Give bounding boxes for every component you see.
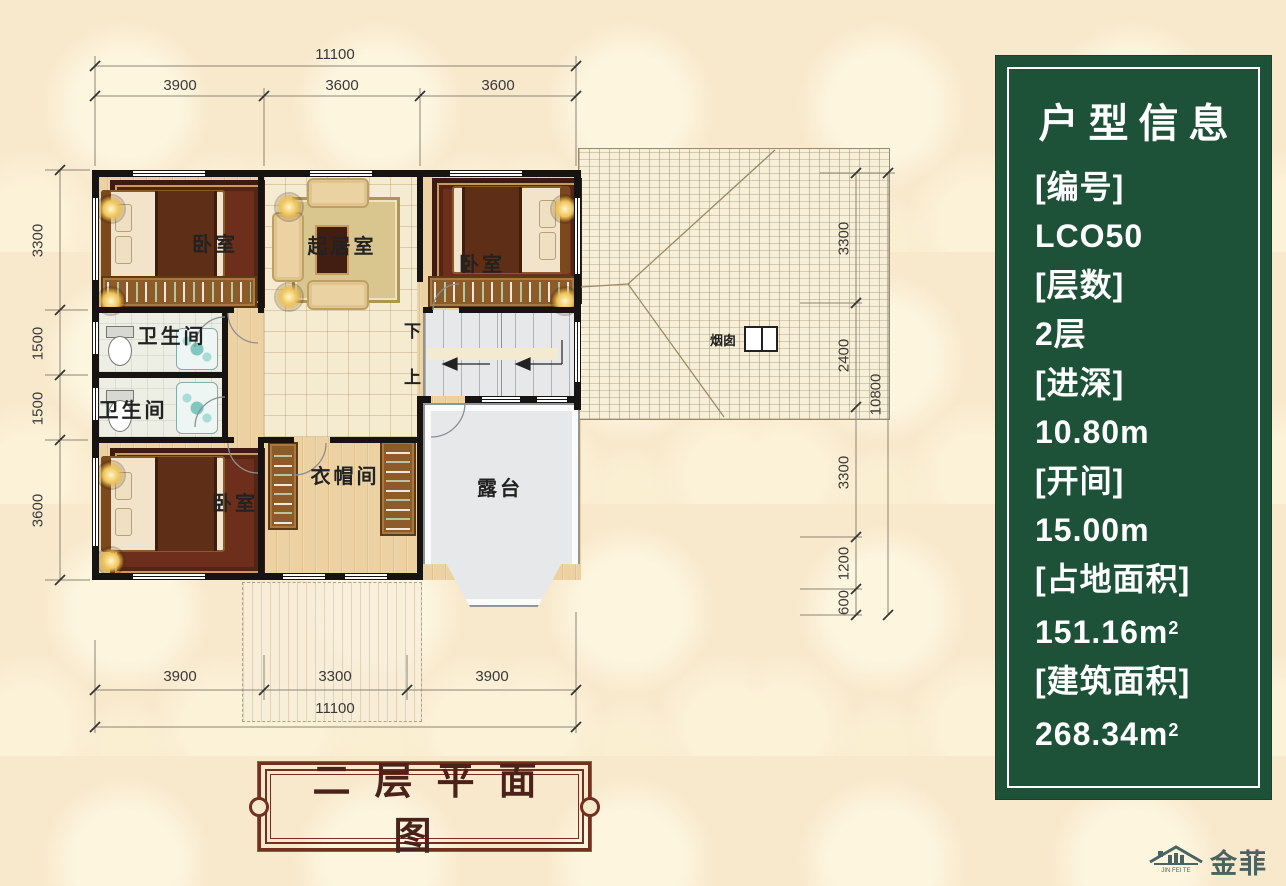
stair-down-label: 下 xyxy=(404,317,421,342)
info-label: [编号] xyxy=(1035,163,1252,212)
wardrobe-bedroom-tl xyxy=(101,276,257,308)
house-icon: JIN FEI TE xyxy=(1148,840,1210,880)
room-label-living: 起居室 xyxy=(282,230,402,259)
dim-right-total: 10800 xyxy=(868,360,885,430)
info-value: 2层 xyxy=(1035,310,1252,359)
info-label: [建筑面积] xyxy=(1035,657,1252,706)
stair-up-label: 上 xyxy=(404,363,421,388)
room-label-bedroom-tr: 卧室 xyxy=(422,248,542,277)
info-panel: 户型信息 [编号] LCO50 [层数] 2层 [进深] 10.80m [开间]… xyxy=(995,55,1272,800)
dim-top-seg-2: 3600 xyxy=(292,77,392,94)
window xyxy=(310,170,372,177)
dim-left-seg-4: 3600 xyxy=(30,476,47,546)
window xyxy=(133,170,205,177)
window xyxy=(345,573,387,580)
wall xyxy=(423,307,433,313)
wall xyxy=(465,396,482,403)
wall xyxy=(567,396,581,403)
lamp-glow xyxy=(276,194,302,220)
info-value: 268.34m2 xyxy=(1035,706,1252,759)
window xyxy=(133,573,205,580)
info-label: [进深] xyxy=(1035,359,1252,408)
dim-right-seg-5: 600 xyxy=(836,568,853,638)
room-label-bathroom-1: 卫生间 xyxy=(112,320,232,349)
dim-bottom-seg-3: 3900 xyxy=(442,668,542,685)
wall xyxy=(92,307,234,313)
wall xyxy=(520,396,537,403)
lamp-glow xyxy=(98,462,124,488)
wall xyxy=(92,372,228,378)
sofa-top xyxy=(307,178,369,208)
dim-left-seg-1: 3300 xyxy=(30,206,47,276)
info-panel-items: [编号] LCO50 [层数] 2层 [进深] 10.80m [开间] 15.0… xyxy=(1035,163,1252,759)
dim-right-seg-3: 3300 xyxy=(836,438,853,508)
superscript: 2 xyxy=(1168,720,1179,740)
dim-top-seg-3: 3600 xyxy=(448,77,548,94)
window xyxy=(92,458,99,546)
wall xyxy=(459,307,581,313)
window xyxy=(482,396,520,403)
lamp-glow xyxy=(276,284,302,310)
dim-bottom-seg-2: 3300 xyxy=(285,668,385,685)
info-value: 151.16m2 xyxy=(1035,604,1252,657)
window xyxy=(574,322,581,382)
superscript: 2 xyxy=(1168,618,1179,638)
brand-logo: JIN FEI TE 金菲特 xyxy=(1148,840,1278,886)
room-label-bathroom-2: 卫生间 xyxy=(73,394,193,423)
chimney-label: 烟囱 xyxy=(710,330,736,349)
wall xyxy=(417,403,423,580)
lamp-glow xyxy=(98,196,124,222)
room-label-cloakroom: 衣帽间 xyxy=(285,460,405,489)
info-label: [开间] xyxy=(1035,457,1252,506)
window xyxy=(450,170,522,177)
room-label-bedroom-bl: 卧室 xyxy=(175,487,295,516)
dim-bottom-seg-1: 3900 xyxy=(130,668,230,685)
dim-top-total: 11100 xyxy=(285,46,385,63)
floor-plan-page: 卧室 起居室 卧室 卧室 卫生间 卫生间 衣帽间 露台 烟囱 下 上 11100… xyxy=(0,0,1286,886)
sofa-bottom xyxy=(307,280,369,310)
window xyxy=(574,198,581,274)
window xyxy=(283,573,325,580)
window xyxy=(92,322,99,354)
dim-right-seg-2: 2400 xyxy=(836,321,853,391)
wall xyxy=(417,396,431,403)
caption-banner: 二层平面图 xyxy=(258,762,591,851)
window xyxy=(537,396,567,403)
info-label: [占地面积] xyxy=(1035,555,1252,604)
chimney-symbol xyxy=(744,326,778,352)
brand-name: 金菲特 xyxy=(1210,842,1278,886)
lamp-glow xyxy=(98,548,124,574)
staircase xyxy=(423,310,576,396)
dim-top-seg-1: 3900 xyxy=(130,77,230,94)
wall xyxy=(330,437,423,443)
info-panel-title: 户型信息 xyxy=(995,91,1272,149)
dim-right-seg-1: 3300 xyxy=(836,204,853,274)
room-label-terrace: 露台 xyxy=(440,472,560,501)
info-value: 15.00m xyxy=(1035,506,1252,555)
room-label-bedroom-tl: 卧室 xyxy=(155,228,275,257)
info-value: 10.80m xyxy=(1035,408,1252,457)
dim-bottom-total: 11100 xyxy=(285,700,385,717)
wall xyxy=(92,437,234,443)
dim-left-seg-3: 1500 xyxy=(30,374,47,444)
window xyxy=(92,198,99,280)
info-value: LCO50 xyxy=(1035,212,1252,261)
plan-caption: 二层平面图 xyxy=(261,749,588,859)
dim-left-seg-2: 1500 xyxy=(30,309,47,379)
svg-text:JIN FEI TE: JIN FEI TE xyxy=(1161,868,1190,874)
info-label: [层数] xyxy=(1035,261,1252,310)
